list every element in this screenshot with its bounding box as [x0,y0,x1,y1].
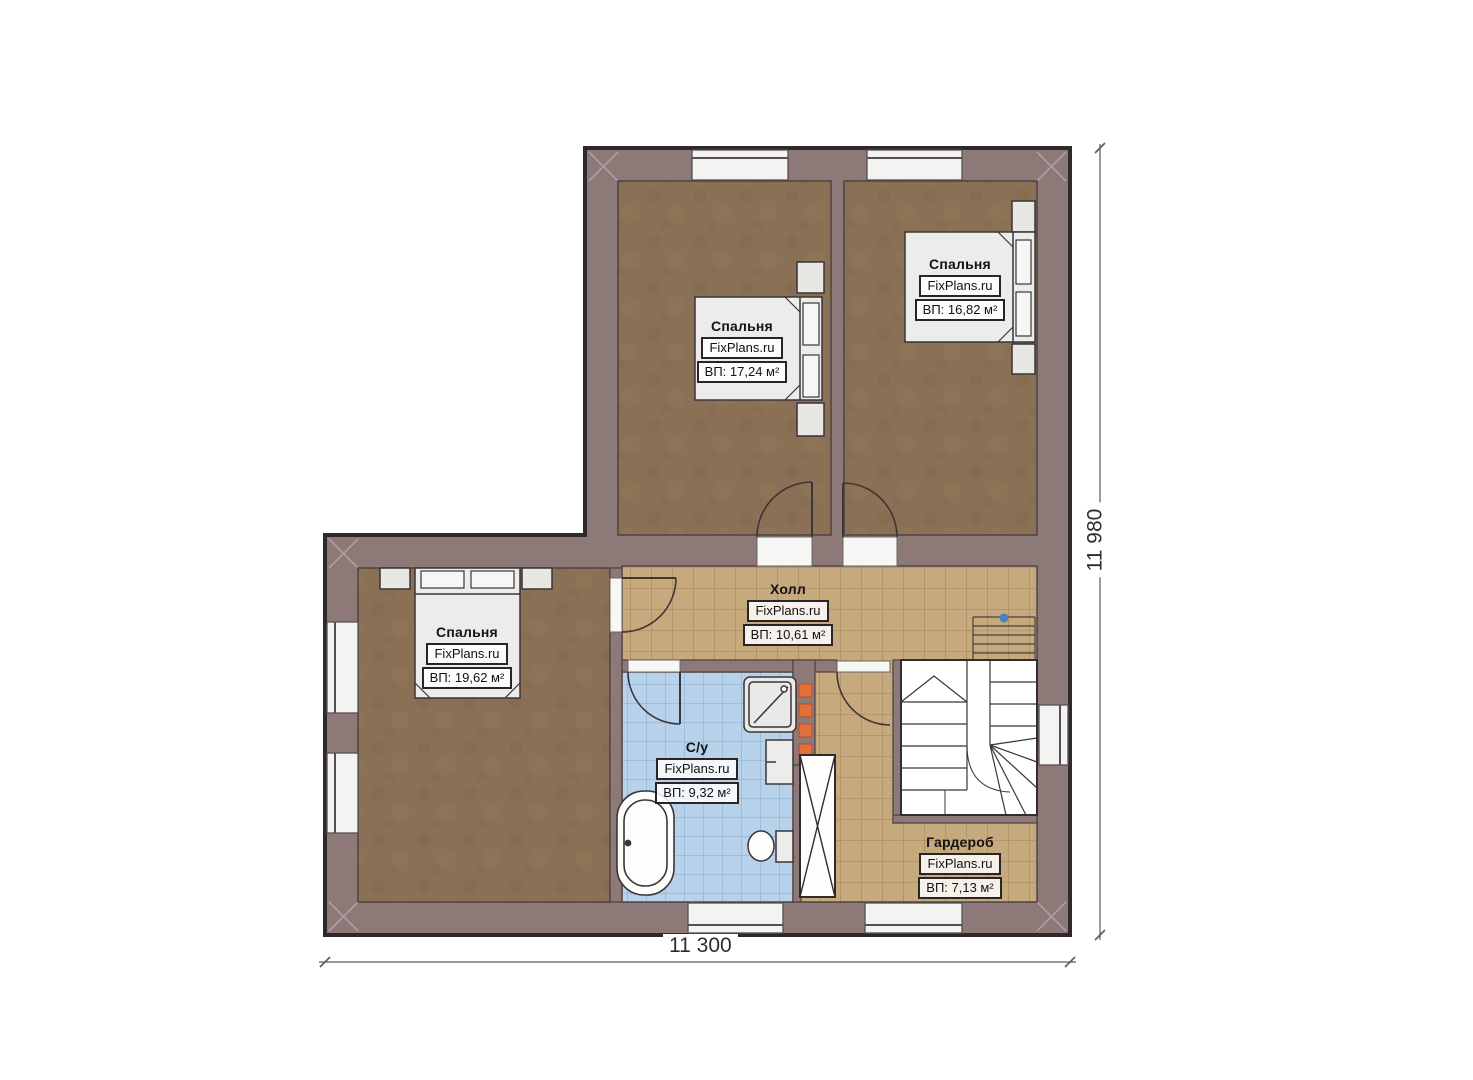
door-opening-bedroom-bottom-left [610,578,622,632]
door-leaf-wardrobe [837,661,890,672]
window-top-1 [692,150,788,180]
door-opening-bedroom-top-right [843,537,897,566]
stair-section-marker [1000,614,1009,623]
bathtub [617,791,674,895]
window-bottom-2 [865,903,962,933]
nightstand [380,568,410,589]
window-left-1 [327,622,358,713]
stair-body [901,660,1037,815]
door-opening-bedroom-top-left [757,537,812,566]
toilet [748,831,793,862]
nightstand [1012,201,1035,232]
wardrobe-cabinet [800,755,835,897]
window-left-2 [327,753,358,833]
window-bottom-1 [688,903,783,933]
nightstand [797,262,824,293]
pillow [1016,292,1031,336]
wall-stair-left [893,660,901,823]
dimension-height-label: 11 980 [1083,503,1107,578]
pillow [471,571,514,588]
window-right-1 [1039,705,1068,765]
nightstand [797,403,824,436]
pillow [803,355,819,397]
door-opening-bathroom [628,660,680,672]
shower-cabin [744,677,796,732]
sink-cabinet [766,740,793,784]
pillow [803,303,819,345]
nightstand [522,568,552,589]
nightstand [1012,344,1035,374]
pillow [1016,240,1031,284]
floor-plan-drawing [0,0,1473,1080]
wall-stair-bottom [893,815,1037,823]
dimension-width-label: 11 300 [663,934,738,958]
floor-plan-page: Спальня FixPlans.ru ВП: 17,24 м² Спальня… [0,0,1473,1080]
window-top-2 [867,150,962,180]
pillow [421,571,464,588]
